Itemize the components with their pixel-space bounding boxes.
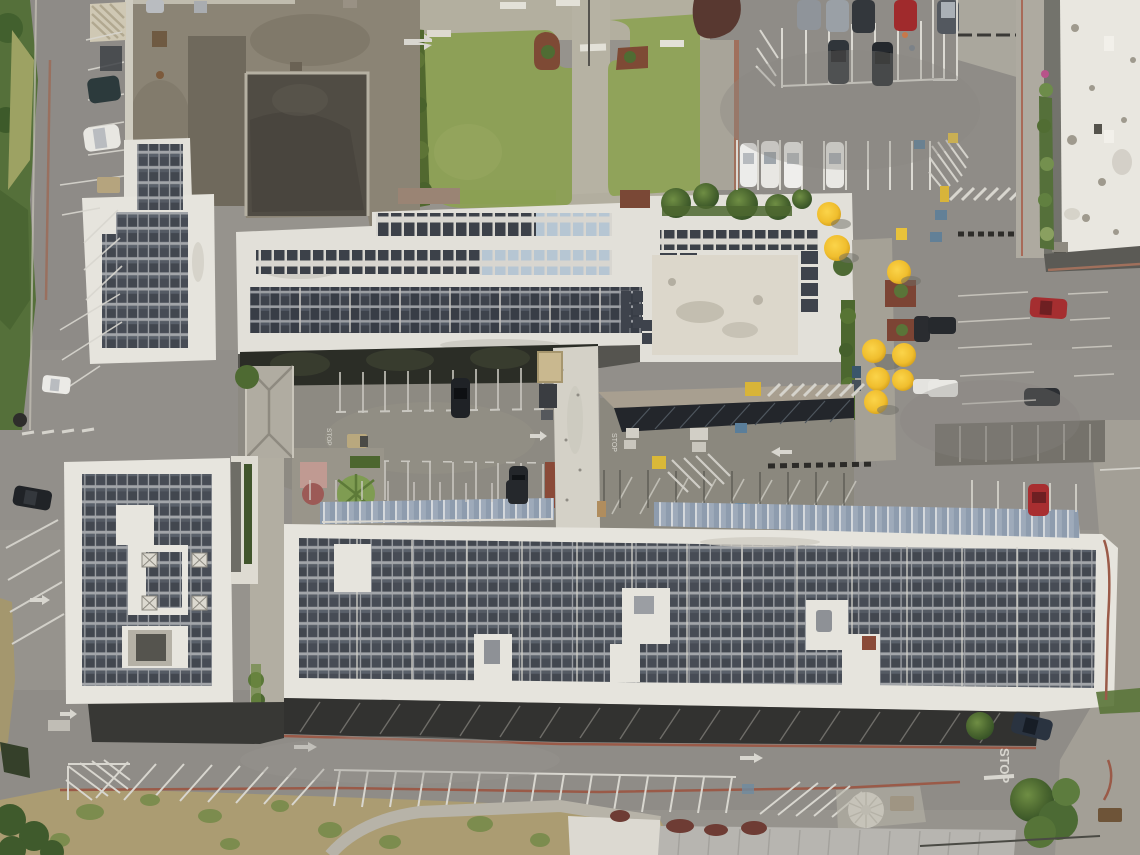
svg-text:STOP: STOP [610,433,617,452]
svg-text:STOP: STOP [325,428,332,446]
